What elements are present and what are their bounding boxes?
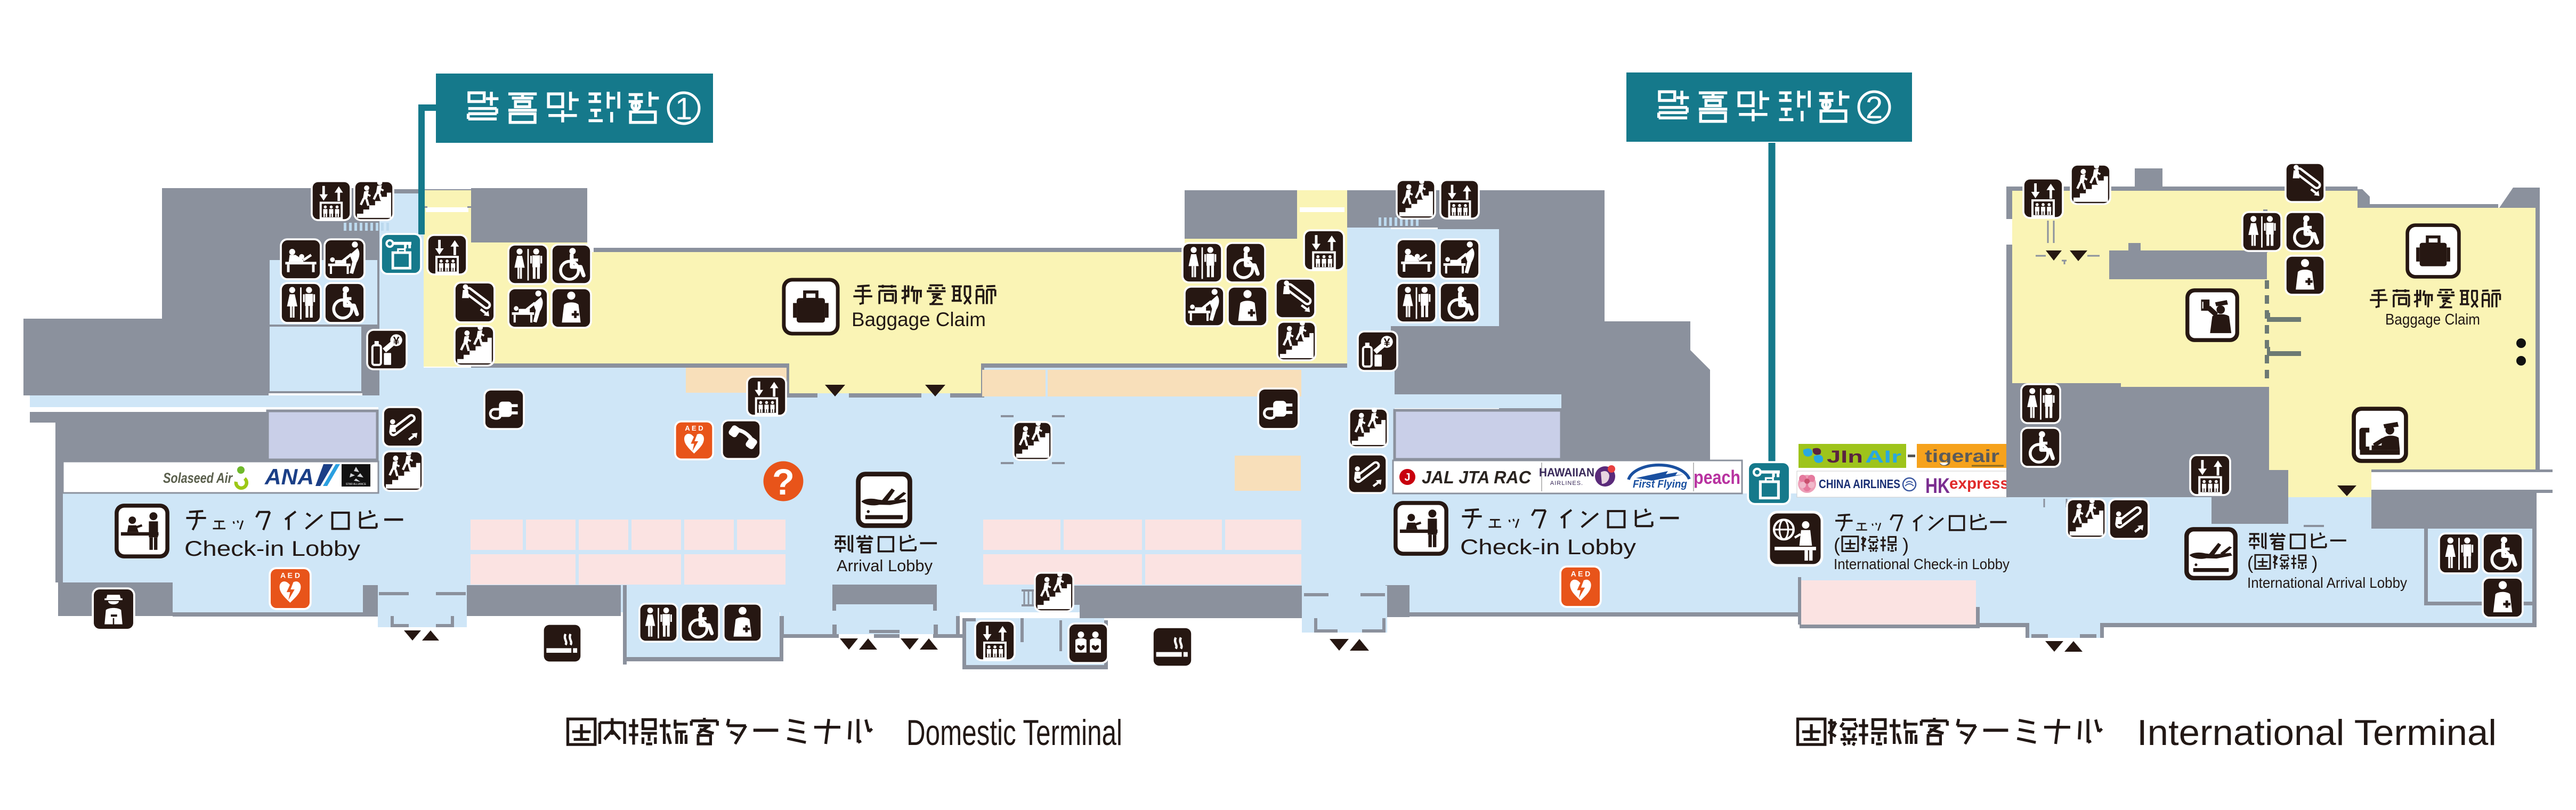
svg-text:HK: HK <box>1925 474 1950 498</box>
svg-text:tigerair: tigerair <box>1925 446 1999 466</box>
svg-text:JAL JTA RAC: JAL JTA RAC <box>1422 467 1532 487</box>
svg-text:J: J <box>1404 472 1410 483</box>
svg-text:Arrival Lobby: Arrival Lobby <box>837 556 933 575</box>
svg-text:Baggage Claim: Baggage Claim <box>852 309 986 330</box>
svg-text:Solaseed Air: Solaseed Air <box>163 470 233 486</box>
svg-text:International Check-in Lobby: International Check-in Lobby <box>1834 556 2010 572</box>
svg-text:): ) <box>1902 534 1909 556</box>
svg-text:STAR ALLIANCE: STAR ALLIANCE <box>346 483 367 486</box>
svg-text:HAWAIIAN: HAWAIIAN <box>1539 466 1594 479</box>
svg-text:AIRLINES.: AIRLINES. <box>1550 480 1583 487</box>
svg-text:CHINA AIRLINES: CHINA AIRLINES <box>1819 477 1900 491</box>
svg-text:International Arrival Lobby: International Arrival Lobby <box>2247 574 2407 591</box>
svg-text:First Flying: First Flying <box>1633 479 1687 490</box>
svg-text:peach: peach <box>1694 466 1740 488</box>
svg-text:(: ( <box>2247 553 2254 573</box>
svg-text:Baggage Claim: Baggage Claim <box>2385 311 2480 328</box>
svg-text:JIn: JIn <box>1827 447 1863 466</box>
svg-text:(: ( <box>1834 534 1840 556</box>
svg-text:2: 2 <box>1866 91 1883 125</box>
svg-text:International Terminal: International Terminal <box>2137 712 2497 753</box>
svg-text:Check-in Lobby: Check-in Lobby <box>184 537 360 561</box>
svg-text:1: 1 <box>675 92 692 126</box>
svg-text:express: express <box>1949 475 2009 492</box>
svg-text:Check-in Lobby: Check-in Lobby <box>1460 536 1636 559</box>
svg-text:ANA: ANA <box>264 464 314 489</box>
svg-text:AIr: AIr <box>1865 447 1901 466</box>
svg-text:Domestic Terminal: Domestic Terminal <box>906 712 1122 753</box>
svg-text:): ) <box>2312 553 2318 573</box>
